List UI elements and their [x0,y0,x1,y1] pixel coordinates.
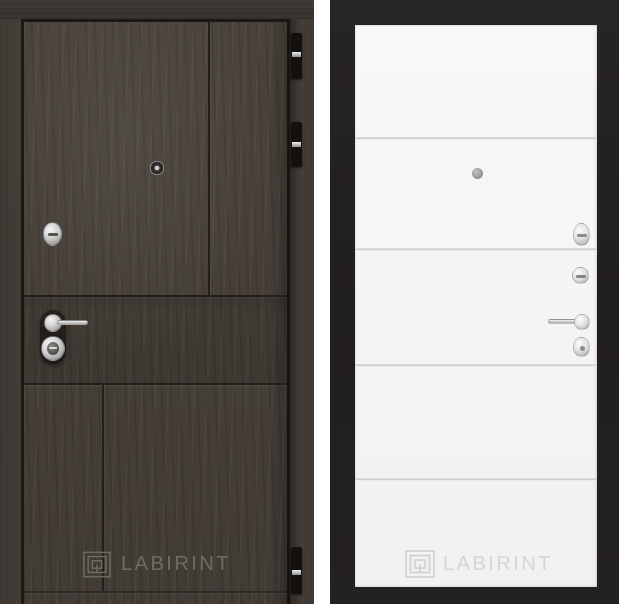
panel-groove-horizontal-bottom [24,591,287,593]
escutcheon-dot [580,346,585,351]
escutcheon [573,337,590,357]
door-hinge-upper [291,122,302,167]
seam-line-1 [355,137,597,140]
latch-knob [573,223,590,246]
hinge-pin [292,52,301,57]
door-frame-right-stile [290,19,314,604]
cylinder-escutcheon [43,222,62,246]
brand-watermark: LABIRINT [83,549,231,579]
hinge-pin [292,142,301,147]
lever-handle [57,320,88,325]
panel-groove-vertical-top [208,22,210,295]
interior-door-panel: LABIRINT [330,0,619,604]
door-hinge-bottom [291,547,302,594]
seam-line-3 [355,364,597,367]
handle-hub [574,314,590,330]
labyrinth-logo-icon [405,550,435,578]
peephole [150,161,164,175]
brand-watermark-text: LABIRINT [443,554,553,574]
door-hinge-top [291,33,302,79]
labyrinth-logo-icon [83,551,111,578]
door-product-photo: LABIRINT LABIRINT [0,0,619,604]
panel-groove-horizontal-lower [24,383,287,385]
seam-line-2 [355,248,597,251]
hinge-pin [292,570,301,575]
knob-slot [577,234,587,237]
keyhole-slot [49,347,57,349]
leaf-right-edge [287,19,290,604]
thumbturn [572,267,589,284]
keyhole-core [47,342,59,355]
seam-line-4 [355,478,597,481]
brand-watermark: LABIRINT [405,549,553,579]
keyhole-slot [48,233,58,236]
door-leaf-interior: LABIRINT [355,25,597,587]
brand-watermark-text: LABIRINT [121,554,231,574]
leaf-top-edge [21,19,290,22]
exterior-door-panel: LABIRINT [0,0,314,604]
door-frame-top-rail [0,0,314,19]
keyhole-escutcheon [41,336,65,361]
thumbturn-slot [576,275,586,278]
peephole [472,168,483,179]
